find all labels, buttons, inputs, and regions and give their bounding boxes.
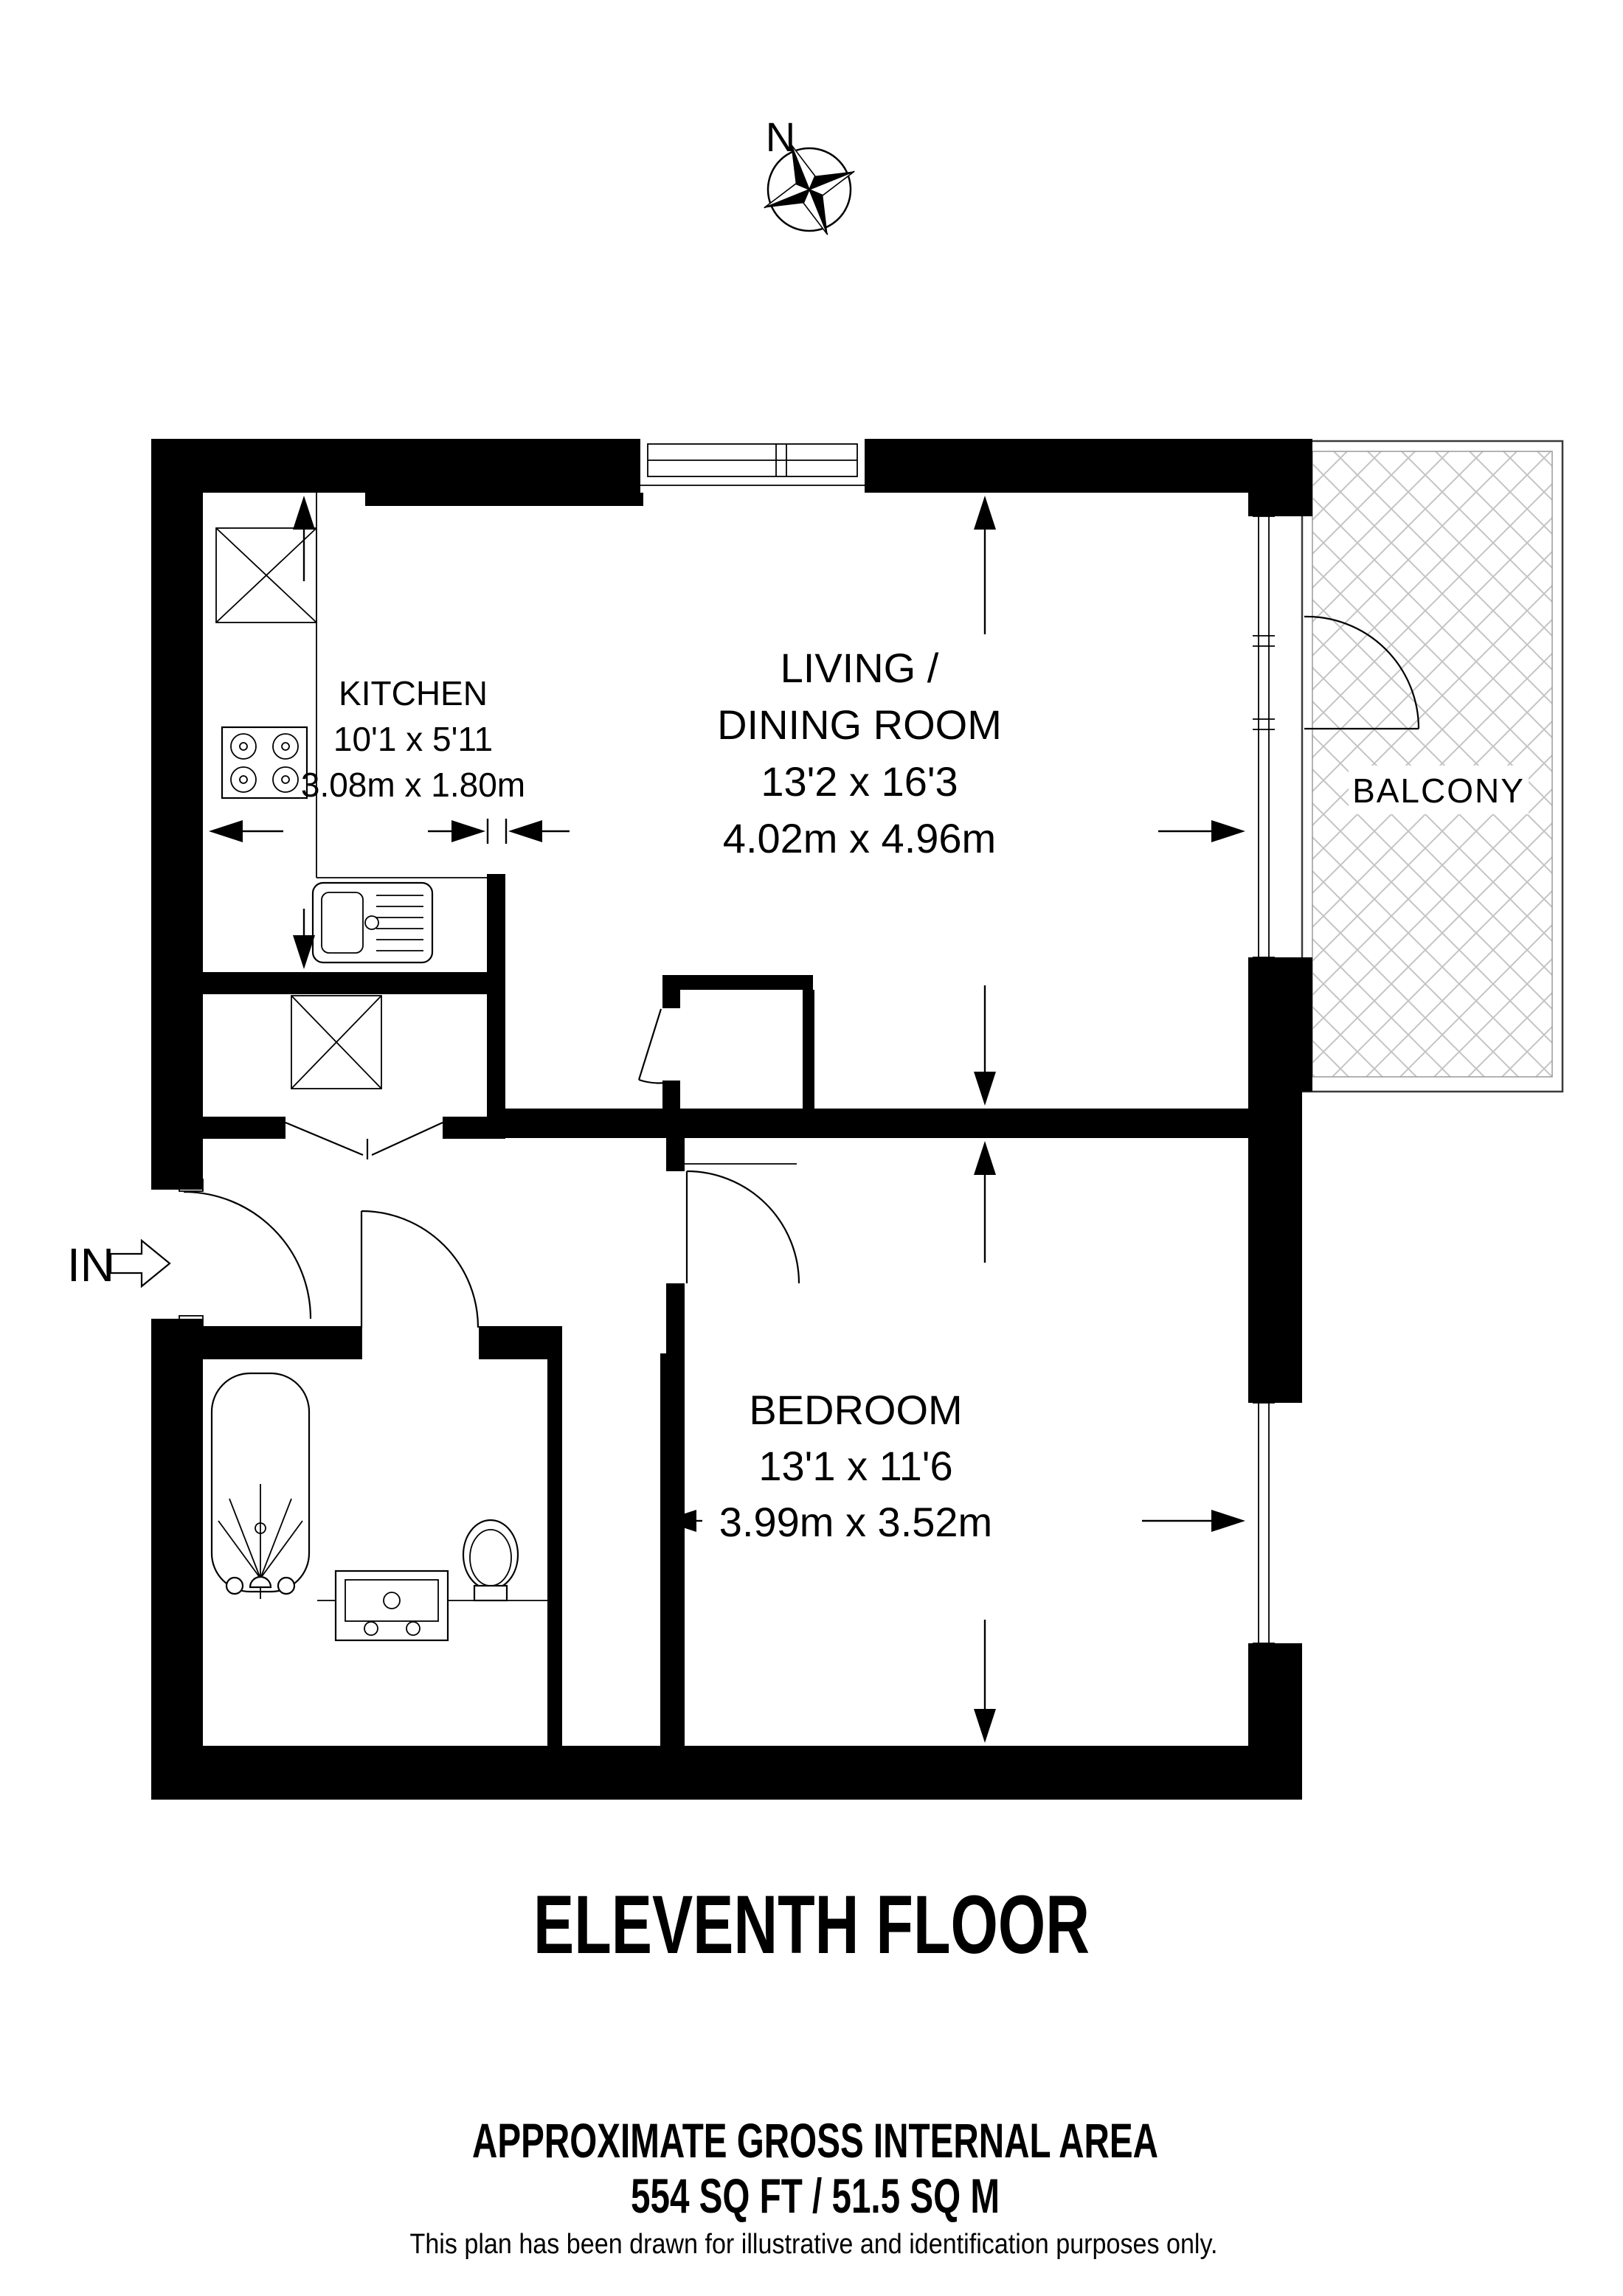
entrance-arrow-icon	[111, 1241, 170, 1286]
bathtub-icon	[212, 1373, 309, 1599]
plan-line	[336, 1571, 448, 1640]
kitchen-closet-side-wall	[487, 874, 505, 1138]
balcony-label: BALCONY	[1352, 771, 1525, 810]
kitchen-appliance-unit	[216, 528, 316, 622]
bedroom-dims-metric: 3.99m x 3.52m	[719, 1499, 992, 1545]
floor-plan: N BALCONY	[0, 0, 1623, 2296]
kitchen-label-block: KITCHEN 10'1 x 5'11 3.08m x 1.80m	[301, 674, 525, 804]
plan-line	[639, 1080, 665, 1083]
left-wall-lower	[151, 1319, 203, 1800]
living-dims-metric: 4.02m x 4.96m	[723, 815, 996, 861]
bedroom-dims-imperial: 13'1 x 11'6	[758, 1443, 952, 1489]
vanity-basin-icon	[336, 1571, 448, 1640]
bathroom-top-wall-right	[480, 1326, 547, 1359]
store-west-stub-lower	[662, 1081, 680, 1109]
plan-line	[286, 1123, 363, 1155]
plan-line	[1211, 1510, 1245, 1532]
entrance-label: IN	[67, 1238, 114, 1291]
plan-line	[372, 1123, 443, 1155]
living-name-line1: LIVING /	[781, 645, 939, 691]
plan-line	[639, 1009, 661, 1080]
bathroom-top-wall-left	[203, 1326, 361, 1359]
plan-line	[687, 1171, 799, 1283]
bathroom-east-wall	[547, 1326, 562, 1746]
kitchen-name: KITCHEN	[339, 674, 488, 712]
plan-line	[974, 496, 996, 530]
living-room-window	[640, 439, 865, 493]
compass-rose-icon: N	[746, 114, 873, 253]
plan-line	[974, 1709, 996, 1743]
bedroom-label-block: BEDROOM 13'1 x 11'6 3.99m x 3.52m	[719, 1387, 992, 1545]
plan-line	[974, 1141, 996, 1175]
plan-line	[508, 820, 542, 842]
plan-line	[226, 1578, 243, 1594]
plan-line	[1312, 451, 1552, 1077]
toilet-icon	[463, 1520, 518, 1600]
bedroom-window	[1253, 1403, 1275, 1643]
bottom-wall	[151, 1746, 1302, 1800]
store-west-stub-upper	[662, 990, 680, 1008]
kitchen-dims-imperial: 10'1 x 5'11	[333, 720, 493, 758]
bedroom-west-wall-lower	[660, 1353, 685, 1746]
balcony-glazed-screen	[1253, 516, 1275, 957]
bedroom-door	[679, 1164, 799, 1283]
right-wall-top	[1248, 439, 1312, 516]
kitchen-bottom-wall	[203, 972, 491, 994]
plan-line	[474, 1586, 507, 1600]
plan-line	[184, 1192, 311, 1319]
right-wall-bottom	[1248, 1643, 1302, 1800]
living-name-line2: DINING ROOM	[717, 701, 1002, 748]
hob-icon	[222, 727, 307, 798]
hall-closet-bifold-doors	[286, 1123, 443, 1159]
plan-line	[209, 820, 243, 842]
left-wall-upper	[151, 439, 203, 1190]
kitchen-sink-icon	[313, 883, 432, 963]
living-dining-label-block: LIVING / DINING ROOM 13'2 x 16'3 4.02m x…	[717, 645, 1002, 861]
plan-line	[293, 496, 315, 530]
bedroom-west-stub-mid	[666, 1283, 685, 1353]
balcony: BALCONY	[1302, 441, 1563, 1092]
top-wall-step	[365, 487, 643, 506]
store-top-wall	[662, 975, 813, 990]
plan-line	[293, 935, 315, 969]
floor-title: ELEVENTH FLOOR	[533, 1879, 1090, 1971]
top-wall-right	[863, 439, 1248, 493]
area-heading: APPROXIMATE GROSS INTERNAL AREA	[472, 2113, 1158, 2168]
plan-line	[451, 820, 485, 842]
entrance-door	[179, 1179, 311, 1328]
plan-line	[974, 1072, 996, 1106]
hall-cupboard-unit	[291, 996, 381, 1089]
bathroom-door	[361, 1211, 480, 1359]
bedroom-name: BEDROOM	[749, 1387, 962, 1433]
store-east-wall	[803, 990, 814, 1109]
bedroom-west-stub-upper	[666, 1138, 685, 1171]
top-wall-left	[151, 439, 642, 493]
plan-line	[361, 1211, 478, 1328]
right-wall-mid	[1248, 957, 1312, 1092]
entrance-marker: IN	[67, 1238, 170, 1291]
disclaimer: This plan has been drawn for illustrativ…	[410, 2229, 1218, 2260]
floor-plan-page: N BALCONY	[0, 0, 1623, 2296]
right-wall-living-bedroom	[1248, 1092, 1302, 1403]
living-bedroom-divider-wall	[505, 1109, 1248, 1138]
living-dims-imperial: 13'2 x 16'3	[761, 758, 958, 805]
kitchen-dims-metric: 3.08m x 1.80m	[301, 766, 525, 804]
area-value: 554 SQ FT / 51.5 SQ M	[631, 2168, 1000, 2223]
plan-line	[278, 1578, 294, 1594]
plan-line	[1211, 820, 1245, 842]
hall-closet-stub-left	[203, 1117, 286, 1139]
plan-line	[463, 1520, 518, 1589]
hall-closet-stub-right	[443, 1117, 505, 1139]
plan-line	[640, 439, 865, 493]
store-cupboard-door	[639, 1009, 665, 1083]
